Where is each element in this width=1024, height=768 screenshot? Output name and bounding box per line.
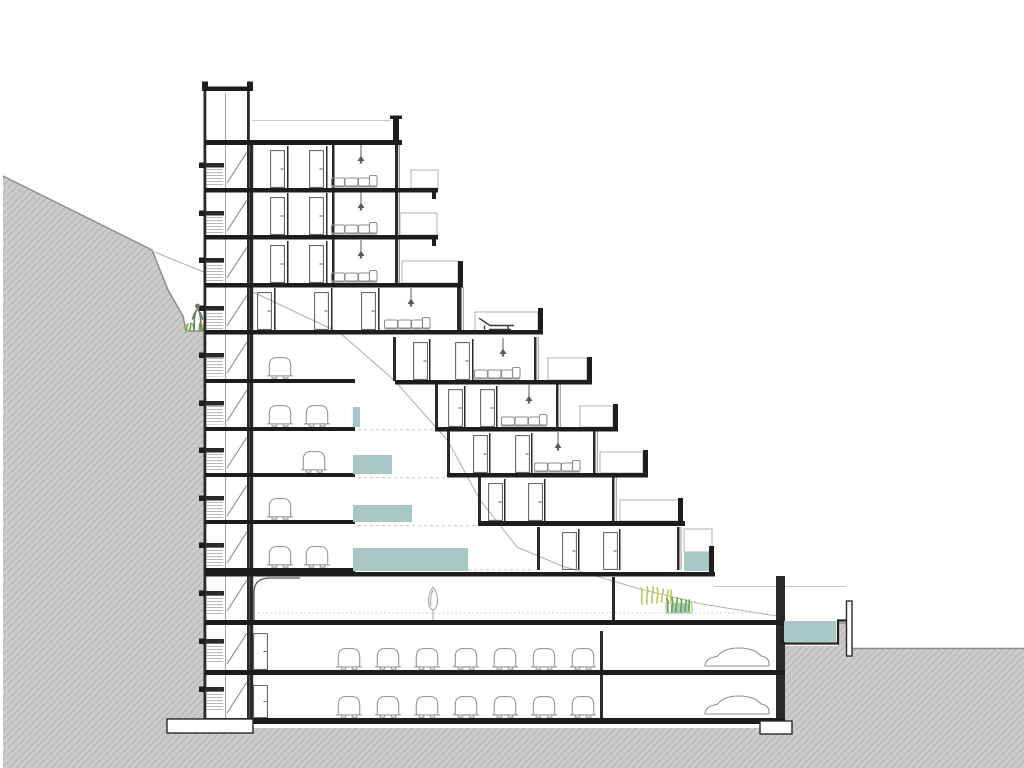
wall	[464, 386, 466, 427]
door	[271, 198, 285, 235]
parapet-end	[643, 450, 648, 477]
stair-landing	[205, 687, 224, 692]
core-parapet-nub	[247, 82, 253, 88]
floor-slab	[205, 330, 543, 335]
terrace-pools	[353, 407, 709, 571]
wall	[287, 241, 289, 283]
terrace-pool	[353, 407, 360, 427]
parapet-end	[678, 498, 683, 526]
wall	[287, 193, 289, 235]
car	[492, 649, 518, 670]
stair-flight-lines	[206, 692, 223, 711]
floor-slab	[205, 283, 463, 288]
glass-railing	[400, 213, 437, 235]
landing-nose	[199, 687, 205, 693]
parapet-end	[709, 546, 714, 576]
section-drawing	[0, 0, 1024, 768]
core-roof-cap	[202, 87, 253, 92]
door	[481, 390, 495, 427]
door	[271, 246, 285, 283]
stair-landing	[205, 401, 224, 406]
wall	[619, 529, 621, 570]
wall	[393, 337, 396, 381]
pendant-lamp	[555, 432, 562, 451]
wall	[489, 433, 491, 473]
door	[310, 246, 324, 283]
door	[529, 484, 543, 521]
wall	[472, 339, 474, 380]
wall	[326, 193, 328, 235]
core-parapet-nub	[202, 82, 208, 88]
stair-landing	[205, 496, 224, 501]
tree	[428, 587, 437, 620]
sofa	[331, 176, 377, 188]
floor-slab	[447, 473, 648, 478]
wall	[287, 146, 289, 188]
wall	[600, 675, 603, 718]
stair-landing	[205, 353, 224, 358]
stair-flight-lines	[206, 406, 223, 425]
parapet-end	[587, 357, 592, 384]
door	[310, 151, 324, 188]
glass-railing	[548, 358, 587, 380]
wall	[496, 386, 498, 427]
wall	[593, 431, 596, 473]
landing-nose	[199, 543, 205, 549]
wall	[274, 288, 276, 330]
car	[414, 649, 440, 670]
door	[456, 343, 470, 380]
stair-flight-lines	[206, 168, 223, 187]
door	[310, 198, 324, 235]
floor-slab	[205, 568, 355, 572]
door	[414, 343, 428, 380]
stair-landing	[205, 211, 224, 216]
parapet-end	[538, 308, 543, 334]
landing-nose	[199, 401, 205, 407]
stair-flight-lines	[206, 644, 223, 663]
retaining-wall	[847, 601, 853, 656]
floor-slab	[205, 620, 785, 625]
hillside-terrain-left	[3, 176, 205, 768]
slab-end-parapets	[390, 116, 714, 577]
floor-slab	[395, 380, 592, 385]
floor-slab	[205, 572, 715, 577]
right-footing	[760, 721, 792, 734]
car	[304, 547, 330, 568]
wall	[578, 529, 580, 570]
wall	[395, 145, 398, 283]
wall	[677, 527, 680, 570]
car	[375, 697, 401, 718]
rounded-wall-corner	[254, 578, 300, 620]
wall	[457, 287, 462, 331]
car	[531, 697, 557, 718]
wall	[537, 527, 540, 570]
floor-slab	[435, 427, 618, 432]
wall	[531, 433, 533, 473]
stair-landing	[205, 306, 224, 311]
wall	[435, 384, 438, 427]
landing-nose	[199, 306, 205, 312]
wall	[504, 479, 506, 521]
door	[449, 390, 463, 427]
sofa	[331, 271, 377, 283]
glazing-line	[616, 477, 617, 521]
car	[375, 649, 401, 670]
glazing-line	[538, 337, 539, 380]
floor-slab	[478, 521, 685, 526]
floor-slab	[205, 235, 438, 240]
stair-flight-lines	[206, 216, 223, 235]
wall	[600, 631, 603, 670]
door	[271, 151, 285, 188]
floor-slabs	[205, 140, 785, 724]
door	[474, 436, 488, 473]
door	[362, 293, 376, 330]
wall	[332, 145, 335, 283]
stair-flight-lines	[206, 453, 223, 472]
pool-water	[784, 621, 836, 642]
sun-lounger	[479, 318, 514, 329]
glass-railing	[411, 170, 438, 188]
sofa	[331, 223, 377, 235]
stair-flight-lines	[206, 548, 223, 567]
car	[267, 358, 293, 379]
glazing-line	[399, 145, 400, 283]
floor-slab	[205, 427, 355, 431]
parapet-end	[393, 118, 399, 142]
car	[492, 697, 518, 718]
sofa	[474, 368, 520, 380]
parapet-end	[458, 261, 463, 287]
pendant-lamp	[526, 385, 533, 404]
architectural-section-page	[0, 0, 1024, 768]
glazing-line	[597, 431, 598, 473]
car	[570, 649, 596, 670]
car-profile	[705, 648, 769, 666]
floor-slab	[205, 670, 785, 675]
door	[516, 436, 530, 473]
car	[336, 649, 362, 670]
parapet-end	[390, 116, 402, 120]
floor-slab	[205, 520, 355, 524]
door	[254, 634, 268, 670]
stair-flight-lines	[206, 311, 223, 330]
terrace-pool	[353, 455, 392, 474]
landing-nose	[199, 211, 205, 217]
car	[453, 697, 479, 718]
car	[267, 499, 293, 520]
car	[267, 406, 293, 427]
stair-flight-lines	[206, 358, 223, 377]
pendant-lamp	[500, 338, 507, 357]
floor-slab	[205, 718, 785, 724]
glazing-line	[560, 384, 561, 427]
parked-cars	[267, 358, 769, 718]
stair-core-tower	[199, 82, 253, 731]
door	[258, 293, 272, 330]
landing-nose	[199, 258, 205, 264]
stair-landing	[205, 543, 224, 548]
stair-landing	[205, 258, 224, 263]
floor-slab	[205, 473, 355, 477]
glass-railing	[620, 500, 680, 521]
car	[414, 697, 440, 718]
door	[563, 533, 577, 570]
car	[453, 649, 479, 670]
wall	[326, 241, 328, 283]
stair-landing	[205, 448, 224, 453]
glazing-line	[463, 287, 464, 330]
sofa	[384, 318, 430, 330]
glazing-line	[681, 527, 682, 570]
floor-slab	[205, 188, 438, 193]
car	[301, 452, 327, 473]
wall	[544, 479, 546, 521]
landing-nose	[199, 496, 205, 502]
floor-slab	[205, 140, 402, 145]
terrace-pool	[353, 548, 468, 571]
glass-railing	[600, 452, 643, 473]
car-profile	[705, 696, 769, 714]
landing-nose	[199, 639, 205, 645]
terrace-pool	[353, 505, 412, 522]
wall	[612, 477, 615, 521]
car	[304, 406, 330, 427]
glass-railings	[400, 170, 712, 552]
wall	[429, 339, 431, 380]
sofa	[534, 461, 580, 473]
terrace-pool	[684, 552, 709, 571]
wall	[378, 288, 380, 330]
car	[570, 697, 596, 718]
car	[336, 697, 362, 718]
floor-slab	[205, 379, 355, 383]
landing-nose	[199, 353, 205, 359]
pendant-lamp	[358, 145, 365, 164]
door	[604, 533, 618, 570]
car	[267, 547, 293, 568]
stair-flight-lines	[206, 263, 223, 282]
wall	[776, 576, 785, 718]
wall	[331, 288, 333, 330]
parapet-end	[432, 192, 436, 199]
pendant-lamp	[408, 288, 415, 307]
core-left-wall	[204, 88, 207, 730]
glass-railing	[580, 406, 613, 427]
core-right-wall	[247, 88, 250, 730]
stair-landing	[205, 639, 224, 644]
stair-landing	[205, 163, 224, 168]
car	[531, 649, 557, 670]
wall	[478, 477, 481, 521]
stair-flight-lines	[206, 501, 223, 520]
parapet-end	[432, 239, 436, 246]
landing-nose	[199, 163, 205, 169]
glass-railing	[402, 261, 458, 283]
terrain-below-building	[205, 623, 1024, 768]
sofa	[501, 415, 547, 427]
landing-nose	[199, 591, 205, 597]
core-footing	[167, 719, 253, 733]
parapet-end	[613, 404, 618, 431]
glass-railing	[684, 529, 712, 552]
pendant-lamp	[358, 192, 365, 211]
stair-landing	[205, 591, 224, 596]
door	[489, 484, 503, 521]
wall	[534, 337, 537, 380]
wall	[612, 577, 615, 620]
wall	[447, 431, 450, 473]
landing-nose	[199, 448, 205, 454]
door	[254, 686, 268, 718]
wall	[556, 384, 559, 427]
pendant-lamp	[358, 240, 365, 259]
wall	[326, 146, 328, 188]
stair-flight-lines	[206, 596, 223, 615]
driveway-level	[254, 578, 770, 620]
